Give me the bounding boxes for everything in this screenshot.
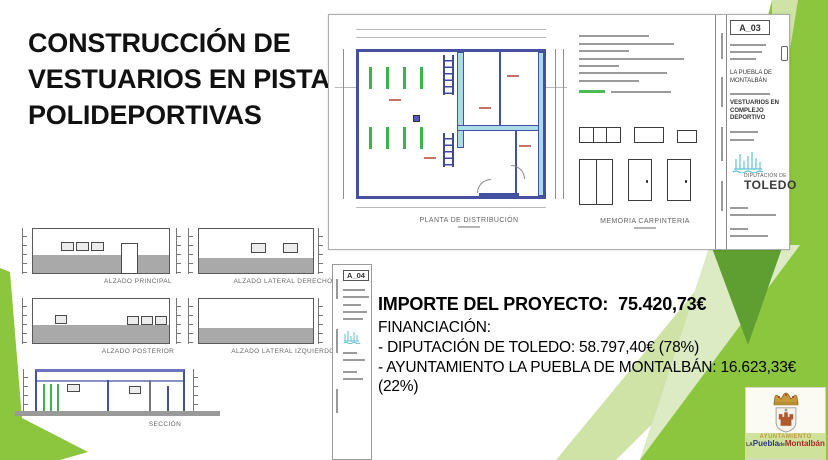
- bench-fixture: [386, 127, 389, 149]
- dim-line: [563, 49, 564, 199]
- project-cost-line: IMPORTE DEL PROYECTO:75.420,73€: [378, 294, 826, 315]
- dim-line: [356, 29, 546, 30]
- carpentry-column: MEMORIA CARPINTERIA: [579, 35, 711, 247]
- dim-ruler: [188, 298, 193, 344]
- vertical-text-bar: [336, 279, 338, 299]
- dim-ruler: [22, 228, 27, 274]
- wall-partition: [515, 131, 517, 196]
- bench-fixture: [386, 67, 389, 89]
- dim-text-mark: [389, 99, 401, 101]
- window: [91, 242, 104, 251]
- micro-text-bar: [579, 35, 649, 37]
- window-pane: [607, 128, 620, 142]
- vertical-text-bar: [336, 329, 338, 353]
- plan-symbol: [413, 115, 420, 122]
- door: [121, 243, 138, 274]
- sheet-code: A_04: [343, 270, 369, 281]
- micro-text-bar: [730, 214, 776, 216]
- window-detail: [634, 127, 664, 143]
- window: [283, 243, 298, 253]
- funding-label: FINANCIACIÓN:: [378, 318, 826, 338]
- elevation-label-text: ALZADO POSTERIOR: [102, 348, 175, 355]
- window: [127, 316, 139, 325]
- green-duct: [43, 384, 45, 414]
- micro-text-bar: [730, 51, 762, 53]
- plan-sheet-a04-strip: A_04: [332, 264, 372, 460]
- titleblock: A_03 LA PUEBLA DE MONTALBÁN VESTUARIOS E…: [715, 15, 790, 249]
- micro-text-bar: [730, 58, 756, 60]
- bench-fixture: [369, 67, 372, 89]
- micro-text-bar: [343, 289, 365, 291]
- project-text: VESTUARIOS EN COMPLEJO DEPORTIVO: [730, 100, 788, 123]
- micro-text-bar: [730, 139, 754, 141]
- micro-text-bar: [730, 235, 768, 237]
- plinth: [33, 325, 169, 343]
- micro-text-bar: [730, 44, 766, 46]
- dim-ruler: [318, 228, 323, 274]
- floor-plan-label: PLANTA DE DISTRIBUCIÓN: [389, 217, 549, 228]
- funding-line-diputacion: - DIPUTACIÓN DE TOLEDO: 58.797,40€ (78%): [378, 338, 826, 358]
- dim-text-mark: [519, 145, 531, 147]
- window-pane: [635, 128, 663, 142]
- green-duct: [57, 384, 59, 414]
- vertical-text-bar: [721, 77, 723, 107]
- micro-text-bar: [579, 50, 629, 52]
- dim-ruler: [22, 298, 27, 344]
- micro-text-bar: [730, 228, 748, 230]
- window-detail: [579, 127, 621, 143]
- window-pane: [594, 128, 608, 142]
- window-pane: [678, 131, 696, 142]
- elevation-label-text: ALZADO LATERAL IZQUIERDO: [231, 348, 335, 355]
- elevation-body: [32, 298, 170, 344]
- micro-text-bar: [730, 93, 770, 95]
- micro-text-bar: [343, 371, 357, 373]
- vertical-text-bar: [721, 127, 723, 161]
- window: [76, 242, 89, 251]
- sheet-code: A_03: [730, 20, 770, 35]
- window-detail: [677, 130, 697, 143]
- wall-partition: [538, 52, 544, 196]
- window-details: [579, 127, 711, 143]
- project-cost-value: 75.420,73€: [618, 294, 706, 314]
- micro-text-bar: [343, 304, 361, 306]
- dim-text-mark: [479, 107, 491, 109]
- dim-text-mark: [424, 157, 436, 159]
- window: [61, 242, 74, 251]
- door-details: [579, 159, 711, 205]
- ground-bar: [15, 411, 220, 416]
- shield-icon: [774, 406, 798, 433]
- plinth: [33, 255, 169, 273]
- door-knob: [646, 180, 649, 183]
- ceiling-line: [37, 380, 183, 382]
- door-detail: [628, 159, 652, 201]
- micro-text-bar: [579, 43, 674, 45]
- wall-partition: [457, 125, 545, 131]
- window-pane: [580, 128, 594, 142]
- micro-text-bar: [343, 311, 367, 313]
- dim-ruler: [188, 228, 193, 274]
- door-knob: [685, 180, 688, 183]
- micro-text-bar: [343, 359, 365, 361]
- wall-partition: [457, 52, 464, 148]
- bench-fixture: [420, 67, 423, 89]
- section-drawing: SECCIÓN: [15, 363, 245, 435]
- micro-text-bar: [343, 296, 369, 298]
- section-label-text: SECCIÓN: [149, 421, 181, 428]
- vertical-text-bar: [336, 389, 338, 413]
- section-body: [35, 369, 185, 411]
- elevation-label: ALZADO PRINCIPAL: [68, 278, 208, 285]
- elevation-label-text: ALZADO PRINCIPAL: [104, 278, 172, 285]
- micro-text-bar: [579, 80, 639, 82]
- micro-text-bar: [730, 131, 758, 133]
- door-detail: [667, 159, 691, 201]
- door-detail: [579, 159, 613, 205]
- toledo-skyline-icon: [343, 328, 363, 344]
- window: [55, 315, 67, 324]
- carpentry-label: MEMORIA CARPINTERIA: [579, 218, 711, 229]
- elevation-body: [32, 228, 170, 274]
- elevation-body: [198, 298, 314, 344]
- door-leaf-line: [596, 160, 597, 204]
- dim-line: [356, 207, 546, 208]
- micro-text-bar: [343, 378, 363, 380]
- elevation-label: ALZADO LATERAL DERECHO: [218, 278, 348, 285]
- legend-highlight-row: [579, 90, 711, 93]
- elevation-label: ALZADO POSTERIOR: [68, 348, 208, 355]
- plan-sheet-a03: PLANTA DE DISTRIBUCIÓN: [328, 14, 790, 250]
- dim-text-mark: [507, 75, 519, 77]
- dim-ruler: [176, 228, 181, 274]
- stair-ladder: [443, 133, 454, 167]
- post: [107, 380, 109, 414]
- dim-ruler: [318, 298, 323, 344]
- plinth: [199, 328, 313, 343]
- section-window: [129, 386, 141, 394]
- elevation-label-text: ALZADO LATERAL DERECHO: [233, 278, 332, 285]
- crown-icon: [771, 391, 801, 406]
- bench-fixture: [403, 67, 406, 89]
- toledo-skyline-icon: [732, 149, 776, 173]
- town-logo-puebla: Puebla: [753, 439, 779, 448]
- titleblock-main: A_03 LA PUEBLA DE MONTALBÁN VESTUARIOS E…: [730, 20, 788, 246]
- floor-plan: PLANTA DE DISTRIBUCIÓN: [329, 15, 574, 251]
- bench-fixture: [403, 127, 406, 149]
- green-duct: [50, 384, 52, 414]
- micro-text-bar: [579, 65, 619, 67]
- elevation-body: [198, 228, 314, 274]
- slide-title: CONSTRUCCIÓN DE VESTUARIOS EN PISTAS POL…: [28, 26, 358, 134]
- wall-partition: [479, 193, 519, 196]
- slide: CONSTRUCCIÓN DE VESTUARIOS EN PISTAS POL…: [0, 0, 828, 460]
- sheet-code-text: A_03: [739, 23, 761, 33]
- post: [149, 380, 151, 414]
- section-label: SECCIÓN: [125, 421, 205, 428]
- elevation-drawings: ALZADO PRINCIPAL ALZADO LATERAL DERECHO: [8, 222, 324, 362]
- finance-block: IMPORTE DEL PROYECTO:75.420,73€ FINANCIA…: [378, 294, 826, 397]
- window: [251, 243, 266, 253]
- dim-ruler: [193, 369, 198, 411]
- window: [141, 316, 153, 325]
- town-logo-band: AYUNTAMIENTO LAPuebladeMontalbán: [746, 433, 825, 459]
- bench-fixture: [420, 127, 423, 149]
- window: [155, 316, 167, 325]
- scale-bar: [634, 227, 656, 229]
- dim-ruler: [176, 298, 181, 344]
- micro-text-bar: [343, 318, 363, 320]
- titleblock-side-strip: [716, 15, 727, 249]
- town-logo-la: LA: [746, 442, 753, 448]
- legend-green-swatch: [579, 90, 605, 93]
- micro-text-bar: [579, 58, 684, 60]
- dim-line: [343, 49, 344, 199]
- bench-fixture: [369, 127, 372, 149]
- micro-text-bar: [611, 91, 671, 93]
- micro-text-bar: [343, 352, 357, 354]
- wall-partition: [499, 52, 501, 125]
- dim-ruler: [23, 369, 28, 411]
- dim-line: [356, 37, 546, 38]
- dim-line: [555, 49, 556, 199]
- town-logo-line2: LAPuebladeMontalbán: [746, 440, 825, 449]
- north-symbol: [781, 46, 788, 61]
- town-hall-logo: AYUNTAMIENTO LAPuebladeMontalbán: [745, 387, 826, 460]
- town-logo-montalban: Montalbán: [785, 439, 825, 448]
- elevation-label: ALZADO LATERAL IZQUIERDO: [218, 348, 348, 355]
- vertical-text-bar: [721, 181, 723, 211]
- project-cost-label: IMPORTE DEL PROYECTO:: [378, 294, 608, 314]
- scale-bar: [458, 226, 480, 228]
- stair-ladder: [443, 55, 454, 95]
- municipality-text: LA PUEBLA DE MONTALBÁN: [730, 70, 788, 85]
- plinth: [199, 258, 313, 273]
- section-window: [67, 384, 80, 392]
- floor-plan-label-text: PLANTA DE DISTRIBUCIÓN: [420, 217, 519, 224]
- door-line: [167, 386, 169, 414]
- carpentry-label-text: MEMORIA CARPINTERIA: [600, 218, 690, 225]
- micro-text-bar: [579, 72, 667, 74]
- org-line2: TOLEDO: [744, 179, 797, 191]
- green-shape-line: [555, 0, 780, 2]
- vertical-text-bar: [721, 33, 723, 59]
- sheet-code-text: A_04: [347, 271, 365, 280]
- micro-text-bar: [730, 207, 748, 209]
- toledo-logo: DIPUTACIÓN DE TOLEDO: [730, 149, 788, 195]
